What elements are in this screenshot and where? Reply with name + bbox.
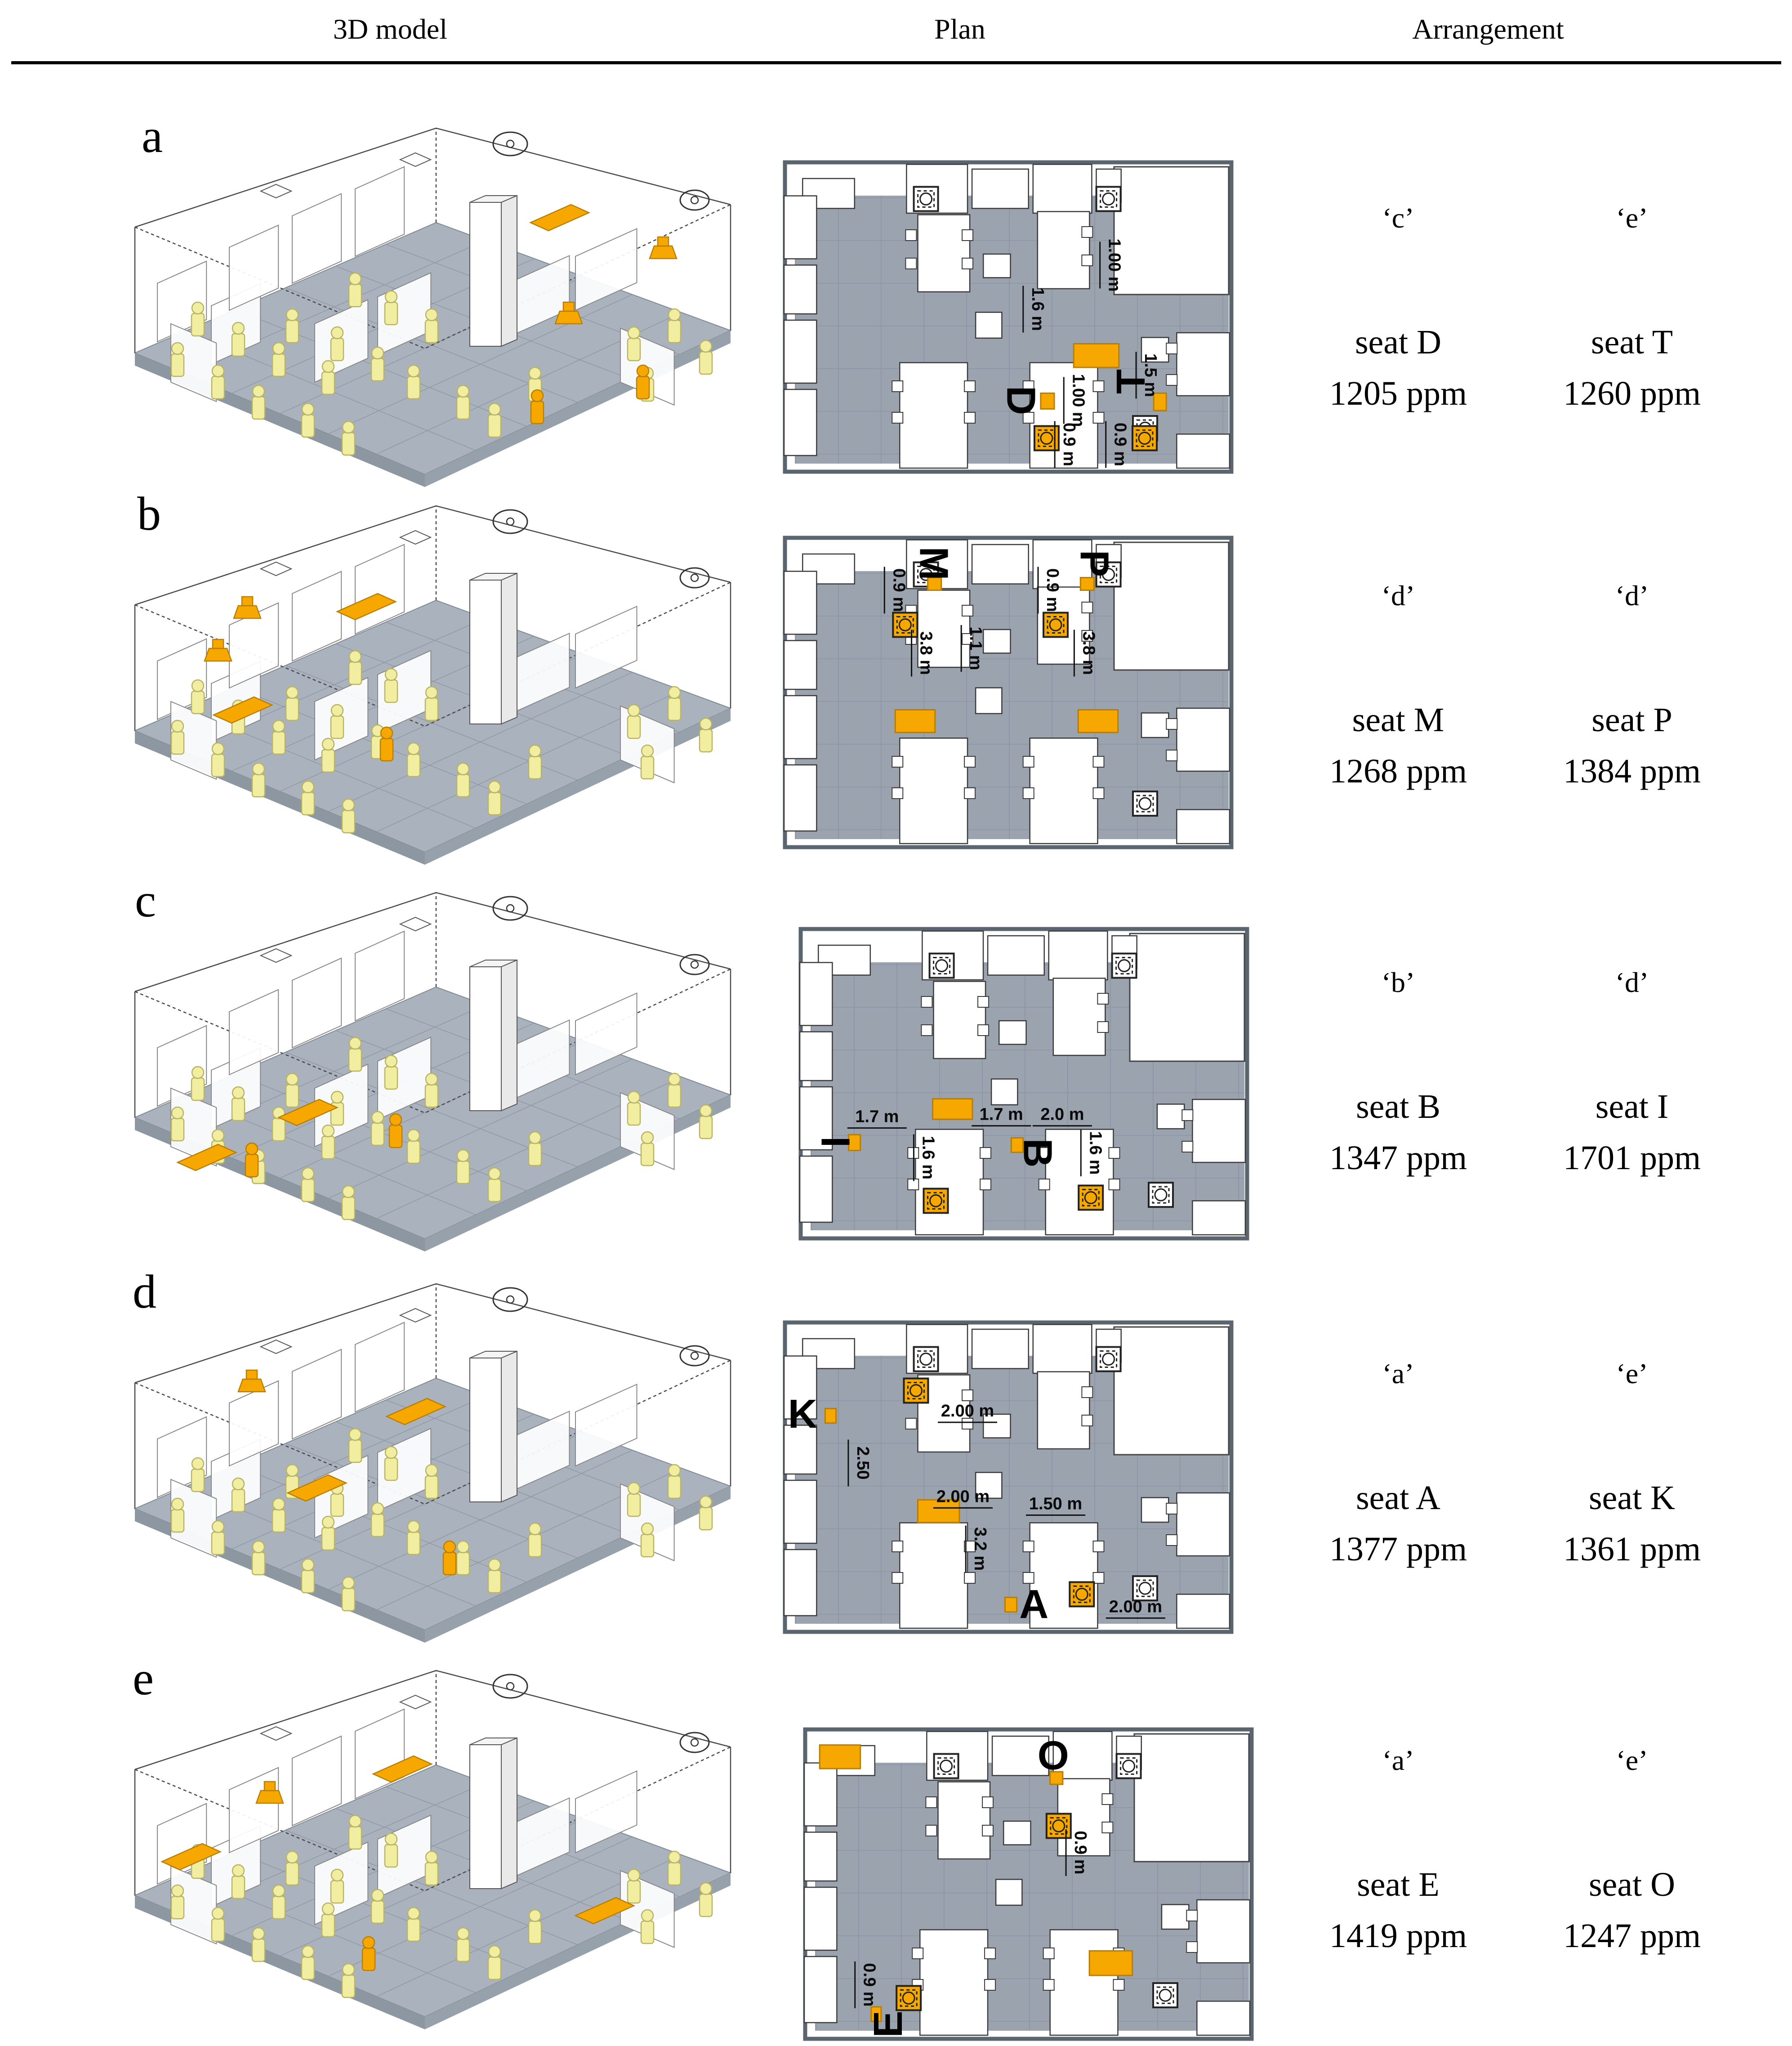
person-icon [641,1132,654,1166]
svg-text:0.9 m: 0.9 m [1111,423,1130,466]
person-icon [342,421,355,455]
person-icon [322,361,334,394]
svg-text:2.00 m: 2.00 m [941,1402,994,1421]
arrangement-co2: 1361 ppm [1515,1530,1749,1569]
svg-text:1.6 m: 1.6 m [1086,1131,1105,1175]
svg-text:1.7 m: 1.7 m [980,1105,1023,1124]
office-floor-plan: 1.7 m1.7 m2.0 m1.6 m1.6 mIB [798,926,1250,1241]
person-icon [232,1087,245,1121]
plan-room [1114,167,1229,295]
figure-row-c: c 1.7 m1.7 m2.0 m1.6 m1.6 mIB ‘b’ seat B… [0,913,1792,1309]
ceiling-diffuser-icon [400,153,431,166]
person-icon [529,1132,541,1166]
svg-text:1.6 m: 1.6 m [918,1136,937,1179]
person-icon [171,1885,184,1919]
north-arrow-icon [680,568,709,588]
svg-text:3.8 m: 3.8 m [1079,631,1098,675]
seat-letter: A [1019,1582,1048,1627]
arrangement-co2: 1260 ppm [1515,374,1749,413]
ceiling-unit-icon [934,1754,958,1778]
ceiling-unit-icon [1149,1183,1173,1207]
person-icon [286,1073,299,1107]
svg-text:1.6 m: 1.6 m [1028,287,1047,331]
person-icon [385,1055,397,1089]
model-column [470,196,517,346]
person-icon [407,1908,420,1941]
person-icon [286,309,299,343]
person-icon [349,651,361,684]
seat-letter: K [788,1392,817,1437]
svg-text:0.9 m: 0.9 m [1071,1831,1090,1874]
person-icon [192,1067,204,1100]
model-column [470,960,517,1111]
person-icon [700,340,712,374]
person-icon [668,1073,681,1107]
person-icon [272,1498,285,1532]
ceiling-diffuser-icon [400,917,431,931]
co2-sensor-highlight-icon [1079,1185,1103,1210]
arrangement-seat: seat E [1281,1865,1515,1904]
office-3d-model [103,881,751,1255]
person-icon [529,1523,541,1557]
arrangement-seat: seat I [1515,1087,1749,1126]
person-icon [192,1458,204,1492]
person-icon [457,1541,469,1575]
person-icon [252,1541,265,1575]
seat-letter: T [1109,369,1154,394]
co2-sensor-highlight-icon [1047,1814,1071,1838]
arrangement-seat: seat K [1515,1479,1749,1518]
highlighted-person-icon [380,727,393,761]
ceiling-unit-icon [914,1347,938,1371]
arrangement-block: ‘d’ seat M 1268 ppm ‘d’ seat P 1384 ppm [1281,526,1749,841]
ceiling-diffuser-icon [261,949,291,962]
figure-row-a: a 1.00 m1.6 m1.00 m1.5 m0.9 m0.9 mDT ‘c’… [0,148,1792,544]
seat-letter: P [1071,550,1116,577]
person-icon [322,1125,334,1159]
person-icon [668,1465,681,1498]
person-icon [342,1577,355,1611]
arrangement-seat: seat A [1281,1479,1515,1518]
svg-text:0.9 m: 0.9 m [860,1963,879,2006]
person-icon [331,327,343,361]
ceiling-unit-icon [1133,791,1157,816]
person-icon [171,1107,184,1141]
arrangement-condition: ‘b’ [1281,966,1515,999]
person-icon [192,302,204,336]
arrangement-co2: 1347 ppm [1281,1139,1515,1178]
ceiling-unit-icon [1153,1983,1177,2007]
co2-sensor-highlight-icon [893,613,917,637]
person-icon [302,1559,314,1593]
person-icon [407,743,420,777]
office-floor-plan: 0.9 m0.9 mOE [802,1727,1254,2042]
highlighted-person-icon [245,1143,258,1177]
person-icon [252,1928,265,1961]
plan-room [1114,542,1229,670]
arrangement-co2: 1247 ppm [1515,1916,1749,1956]
arrangement-block: ‘b’ seat B 1347 ppm ‘d’ seat I 1701 ppm [1281,913,1749,1228]
arrangement-co2: 1701 ppm [1515,1139,1749,1178]
office-floor-plan: 2.00 m2.502.00 m1.50 m3.2 m2.00 mKA [782,1320,1234,1635]
svg-text:1.00 m: 1.00 m [1069,374,1088,427]
supply-plate-icon [530,205,589,231]
person-icon [212,743,224,777]
person-icon [529,1910,541,1943]
figure-row-b: b 0.9 m3.8 m1.1 m0.9 m3.8 mMP ‘d’ seat M… [0,526,1792,922]
co2-sensor-highlight-icon [896,1986,921,2010]
person-icon [488,1559,501,1593]
person-icon [342,1186,355,1220]
person-icon [385,291,397,325]
office-floor-plan: 0.9 m3.8 m1.1 m0.9 m3.8 mMP [782,535,1234,850]
arrangement-co2: 1384 ppm [1515,752,1749,791]
person-icon [407,1521,420,1555]
exhaust-hood-icon [234,597,261,618]
arrangement-condition: ‘e’ [1515,1357,1749,1390]
arrangement-condition: ‘d’ [1515,579,1749,612]
svg-text:0.9 m: 0.9 m [1060,423,1079,466]
column-header-plan: Plan [934,13,985,46]
person-icon [425,1851,438,1885]
person-icon [385,1447,397,1480]
north-arrow-icon [680,190,709,210]
exhaust-hood-icon [205,639,232,661]
person-icon [331,705,343,738]
office-3d-model [103,495,751,868]
svg-text:2.00 m: 2.00 m [936,1487,990,1506]
arrangement-co2: 1205 ppm [1281,374,1515,413]
person-icon [385,669,397,702]
office-3d-model [103,1659,751,2033]
svg-text:1.1 m: 1.1 m [966,626,985,670]
person-icon [457,1928,469,1961]
svg-text:1.50 m: 1.50 m [1029,1495,1082,1514]
person-icon [322,738,334,772]
arrangement-block: ‘c’ seat D 1205 ppm ‘e’ seat T 1260 ppm [1281,148,1749,463]
person-icon [232,1865,245,1899]
person-icon [488,781,501,815]
exhaust-hood-icon [238,1370,265,1392]
plan-room [1114,1327,1229,1455]
co2-sensor-highlight-icon [924,1188,948,1213]
arrangement-seat: seat M [1281,701,1515,740]
person-icon [371,1112,384,1145]
svg-text:2.00 m: 2.00 m [1109,1597,1162,1616]
ceiling-unit-icon [1097,187,1121,211]
person-icon [342,799,355,833]
person-icon [232,1478,245,1512]
person-icon [322,1516,334,1550]
arrangement-seat: seat O [1515,1865,1749,1904]
person-icon [342,1964,355,1997]
co2-sensor-highlight-icon [904,1379,928,1403]
ceiling-unit-icon [1117,1754,1141,1778]
ceiling-unit-icon [1112,954,1137,978]
person-icon [371,1503,384,1537]
person-icon [212,1908,224,1941]
person-icon [700,718,712,752]
person-icon [349,273,361,307]
person-icon [628,1869,640,1903]
person-icon [425,687,438,720]
seat-letter: D [999,386,1043,415]
person-icon [385,1833,397,1867]
person-icon [425,1073,438,1107]
person-icon [641,1910,654,1943]
co2-sensor-highlight-icon [1043,613,1068,637]
model-column [470,1738,517,1889]
north-arrow-icon [680,1346,709,1366]
person-icon [349,1037,361,1071]
seat-letter: M [911,547,956,581]
highlighted-person-icon [389,1114,402,1148]
ceiling-diffuser-icon [400,531,431,544]
svg-text:0.9 m: 0.9 m [1043,568,1062,612]
person-icon [628,705,640,738]
person-icon [272,343,285,376]
highlighted-person-icon [362,1937,375,1970]
arrangement-condition: ‘d’ [1515,966,1749,999]
highlighted-person-icon [531,390,544,424]
ceiling-unit-icon [1097,1347,1121,1371]
arrangement-condition: ‘c’ [1281,201,1515,235]
person-icon [700,1496,712,1530]
ceiling-unit-icon [930,954,954,978]
svg-text:3.8 m: 3.8 m [917,631,936,675]
person-icon [700,1883,712,1916]
person-icon [628,327,640,361]
co2-sensor-highlight-icon [1070,1582,1094,1606]
north-arrow-icon [680,955,709,974]
ceiling-diffuser-icon [400,1309,431,1322]
person-icon [331,1869,343,1903]
person-icon [457,385,469,419]
plan-room [1134,1734,1249,1862]
person-icon [425,309,438,343]
person-icon [212,365,224,399]
office-3d-model [103,1273,751,1646]
person-icon [628,1091,640,1125]
person-icon [407,365,420,399]
arrangement-co2: 1377 ppm [1281,1530,1515,1569]
arrangement-condition: ‘a’ [1281,1744,1515,1777]
highlighted-person-icon [637,365,649,399]
person-icon [668,687,681,720]
ceiling-unit-icon [1133,1576,1157,1600]
model-column [470,1351,517,1502]
arrangement-condition: ‘d’ [1281,579,1515,612]
person-icon [171,343,184,376]
person-icon [302,403,314,437]
svg-text:2.0 m: 2.0 m [1040,1105,1084,1124]
person-icon [425,1465,438,1498]
person-icon [371,347,384,381]
figure-row-d: d 2.00 m2.502.00 m1.50 m3.2 m2.00 mKA ‘a… [0,1304,1792,1700]
person-icon [628,1483,640,1516]
person-icon [272,1107,285,1141]
co2-sensor-highlight-icon [1132,426,1157,451]
header-rule [11,61,1781,64]
seat-letter: B [1015,1139,1060,1168]
arrangement-block: ‘a’ seat A 1377 ppm ‘e’ seat K 1361 ppm [1281,1304,1749,1619]
figure-page: 3D model Plan Arrangement a 1.00 m1.6 m1… [0,0,1792,2046]
person-icon [457,1150,469,1184]
person-icon [192,680,204,714]
person-icon [641,1523,654,1557]
person-icon [371,1890,384,1923]
north-arrow-icon [680,1733,709,1752]
model-column [470,573,517,724]
person-icon [322,1903,334,1937]
person-icon [407,1130,420,1163]
arrangement-co2: 1268 ppm [1281,752,1515,791]
person-icon [641,745,654,779]
person-icon [668,1851,681,1885]
office-3d-model [103,117,751,490]
person-icon [171,720,184,754]
arrangement-condition: ‘a’ [1281,1357,1515,1390]
ceiling-unit-icon [914,187,938,211]
person-icon [252,385,265,419]
arrangement-seat: seat T [1515,323,1749,362]
person-icon [286,687,299,720]
person-icon [302,1168,314,1202]
arrangement-seat: seat D [1281,323,1515,362]
seat-letter: O [1038,1733,1069,1778]
person-icon [286,1851,299,1885]
arrangement-block: ‘a’ seat E 1419 ppm ‘e’ seat O 1247 ppm [1281,1691,1749,2006]
office-floor-plan: 1.00 m1.6 m1.00 m1.5 m0.9 m0.9 mDT [782,160,1234,474]
arrangement-condition: ‘e’ [1515,1744,1749,1777]
arrangement-condition: ‘e’ [1515,201,1749,235]
seat-letter: I [812,1136,857,1148]
column-header-3d-model: 3D model [333,13,447,46]
person-icon [212,1521,224,1555]
person-icon [252,763,265,797]
person-icon [171,1498,184,1532]
svg-text:1.7 m: 1.7 m [855,1108,899,1126]
plan-room [1130,934,1244,1061]
svg-text:2.50: 2.50 [853,1447,872,1480]
svg-text:3.2 m: 3.2 m [971,1527,990,1571]
person-icon [302,1946,314,1979]
person-icon [349,1429,361,1462]
person-icon [488,1946,501,1979]
ceiling-diffuser-icon [261,1727,291,1740]
person-icon [529,745,541,779]
person-icon [302,781,314,815]
person-icon [232,322,245,356]
person-icon [668,309,681,343]
svg-text:0.9 m: 0.9 m [889,568,908,612]
person-icon [488,1168,501,1202]
highlighted-person-icon [443,1541,456,1575]
person-icon [488,403,501,437]
seat-letter: E [866,2010,911,2037]
ceiling-diffuser-icon [400,1695,431,1709]
figure-row-e: e 0.9 m0.9 mOE ‘a’ seat E 1419 ppm ‘e’ s… [0,1691,1792,2046]
ceiling-diffuser-icon [261,562,291,576]
arrangement-seat: seat B [1281,1087,1515,1126]
arrangement-seat: seat P [1515,701,1749,740]
ceiling-diffuser-icon [261,1340,291,1354]
ceiling-diffuser-icon [261,184,291,198]
person-icon [457,763,469,797]
arrangement-co2: 1419 ppm [1281,1916,1515,1956]
person-icon [272,720,285,754]
svg-text:1.00 m: 1.00 m [1105,238,1124,291]
column-header-arrangement: Arrangement [1412,13,1564,46]
person-icon [349,1815,361,1849]
person-icon [700,1105,712,1139]
person-icon [272,1885,285,1919]
